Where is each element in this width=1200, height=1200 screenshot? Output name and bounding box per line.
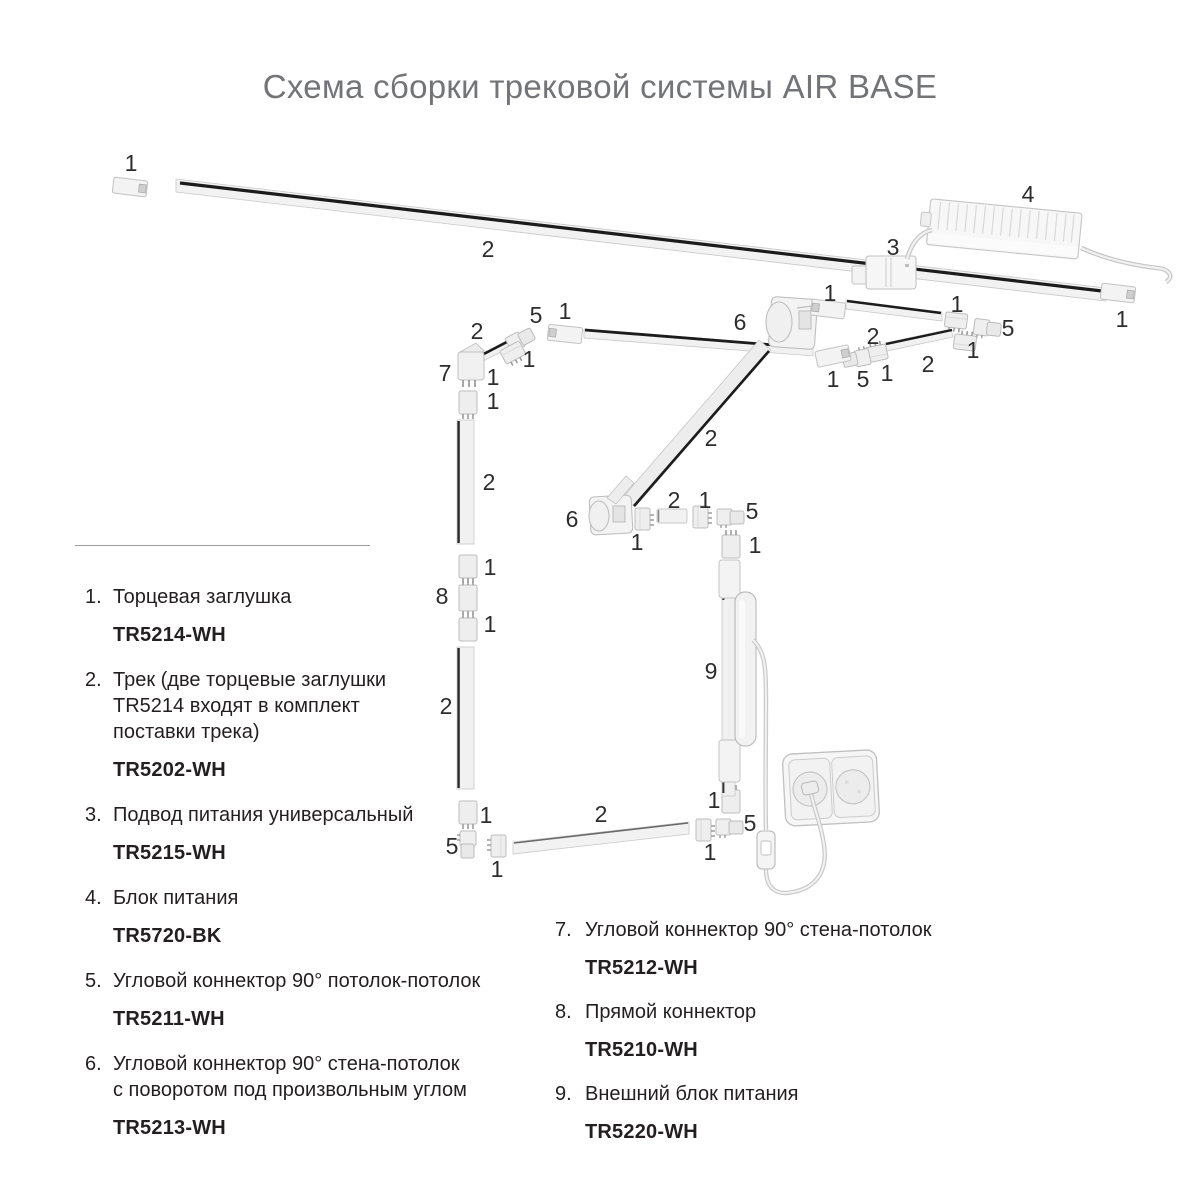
legend-item-number: 7. <box>555 917 572 943</box>
legend-item-code: TR5210-WH <box>585 1037 1015 1063</box>
part-callout-1: 1 <box>523 346 536 372</box>
legend-item-3: 3. Подвод питания универсальный TR5215-W… <box>85 802 515 866</box>
legend-item-code: TR5211-WH <box>113 1006 515 1032</box>
corner-connector-90 <box>717 509 744 528</box>
legend-item-text: Угловой коннектор 90° стена-потолок с по… <box>113 1053 467 1101</box>
legend-item-text: Угловой коннектор 90° стена-потолок <box>585 919 932 941</box>
rotating-connector-6-upper <box>766 296 818 349</box>
part-callout-1: 1 <box>559 298 572 324</box>
corner-connector-90 <box>716 819 743 838</box>
legend-item-number: 4. <box>85 885 102 911</box>
legend-item-8: 8. Прямой коннектор TR5210-WH <box>555 999 1015 1063</box>
mini-connector <box>722 530 740 558</box>
legend-separator <box>75 545 370 546</box>
legend-item-code: TR5215-WH <box>113 840 515 866</box>
part-callout-3: 3 <box>887 234 900 260</box>
legend-item-1: 1. Торцевая заглушка TR5214-WH <box>85 584 515 648</box>
legend-item-number: 6. <box>85 1051 102 1077</box>
part-callout-7: 7 <box>439 360 452 386</box>
part-callout-1: 1 <box>487 388 500 414</box>
part-callout-1: 1 <box>824 280 837 306</box>
rotating-connector-6-lower <box>589 476 634 535</box>
part-callout-2: 2 <box>483 469 496 495</box>
part-callout-1: 1 <box>699 487 712 513</box>
legend-item-text: Прямой коннектор <box>585 1001 756 1023</box>
legend-item-number: 2. <box>85 667 102 693</box>
part-callout-2: 2 <box>471 318 484 344</box>
wall-socket <box>782 750 880 827</box>
part-callout-1: 1 <box>749 532 762 558</box>
part-callout-2: 2 <box>668 487 681 513</box>
psu9-top-adapter <box>719 560 740 598</box>
legend-item-text: Подвод питания универсальный <box>113 804 413 826</box>
part-callout-1: 1 <box>1116 306 1129 332</box>
legend-item-code: TR5212-WH <box>585 955 1015 981</box>
legend-item-4: 4. Блок питания TR5720-BK <box>85 885 515 949</box>
part-callout-1: 1 <box>125 150 138 176</box>
legend-item-2: 2. Трек (две торцевые заглушки TR5214 вх… <box>85 667 515 783</box>
legend-item-text: Трек (две торцевые заглушки TR5214 входя… <box>113 669 386 743</box>
part-callout-5: 5 <box>744 810 757 836</box>
part-callout-1: 1 <box>487 364 500 390</box>
part-callout-1: 1 <box>708 787 721 813</box>
part-callout-1: 1 <box>827 366 840 392</box>
part-callout-5: 5 <box>746 498 759 524</box>
part-callout-6: 6 <box>566 506 579 532</box>
assembly-scheme-page: Схема сборки трековой системы AIR BASE <box>0 0 1200 1200</box>
wall-ceiling-connector-7 <box>458 343 484 387</box>
diagonal-track <box>623 340 771 507</box>
psu9-bottom-adapter <box>719 740 740 782</box>
legend-item-text: Внешний блок питания <box>585 1083 799 1105</box>
part-callout-9: 9 <box>705 658 718 684</box>
part-callout-2: 2 <box>705 425 718 451</box>
part-callout-4: 4 <box>1022 181 1035 207</box>
part-callout-5: 5 <box>530 302 543 328</box>
legend-item-number: 9. <box>555 1081 572 1107</box>
legend-item-code: TR5202-WH <box>113 757 515 783</box>
vertical-track-upper <box>457 420 474 544</box>
legend-item-text: Угловой коннектор 90° потолок-потолок <box>113 970 480 992</box>
mini-connector <box>635 508 654 530</box>
part-callout-2: 2 <box>595 801 608 827</box>
legend-item-code: TR5214-WH <box>113 622 515 648</box>
part-callout-1: 1 <box>967 337 980 363</box>
legend-item-code: TR5213-WH <box>113 1115 515 1141</box>
legend-item-text: Блок питания <box>113 887 238 909</box>
legend-item-7: 7. Угловой коннектор 90° стена-потолок T… <box>555 917 1015 981</box>
part-callout-2: 2 <box>922 351 935 377</box>
part-callout-2: 2 <box>482 236 495 262</box>
legend-item-number: 1. <box>85 584 102 610</box>
part-callout-6: 6 <box>734 309 747 335</box>
plug <box>801 780 819 795</box>
part-callout-2: 2 <box>867 323 880 349</box>
legend-item-number: 8. <box>555 999 572 1025</box>
mini-connector <box>696 819 715 841</box>
part-callout-1: 1 <box>704 839 717 865</box>
part-callout-5: 5 <box>1002 315 1015 341</box>
part-callout-1: 1 <box>631 529 644 555</box>
end-cap <box>547 324 582 343</box>
legend-item-text: Торцевая заглушка <box>113 586 291 608</box>
external-power-supply-9 <box>735 592 756 746</box>
end-cap-top-left <box>112 177 148 197</box>
legend-item-code: TR5220-WH <box>585 1119 1015 1145</box>
legend-item-5: 5. Угловой коннектор 90° потолок-потолок… <box>85 968 515 1032</box>
part-callout-1: 1 <box>484 554 497 580</box>
loop-track-upper <box>846 300 942 321</box>
legend-item-9: 9. Внешний блок питания TR5220-WH <box>555 1081 1015 1145</box>
legend-item-code: TR5720-BK <box>113 923 515 949</box>
end-cap-top-right <box>1100 283 1136 303</box>
mini-connector <box>459 391 477 419</box>
legend-item-number: 5. <box>85 968 102 994</box>
part-callout-1: 1 <box>951 291 964 317</box>
legend-left-column: 1. Торцевая заглушка TR5214-WH 2. Трек (… <box>85 584 515 1160</box>
legend-right-column: 7. Угловой коннектор 90° стена-потолок T… <box>555 917 1015 1163</box>
loop-track-lower <box>885 329 953 351</box>
legend-item-6: 6. Угловой коннектор 90° стена-потолок с… <box>85 1051 515 1141</box>
mini-connector <box>459 555 477 583</box>
legend-item-number: 3. <box>85 802 102 828</box>
part-callout-1: 1 <box>881 360 894 386</box>
inline-switch <box>757 831 775 869</box>
part-callout-5: 5 <box>857 366 870 392</box>
